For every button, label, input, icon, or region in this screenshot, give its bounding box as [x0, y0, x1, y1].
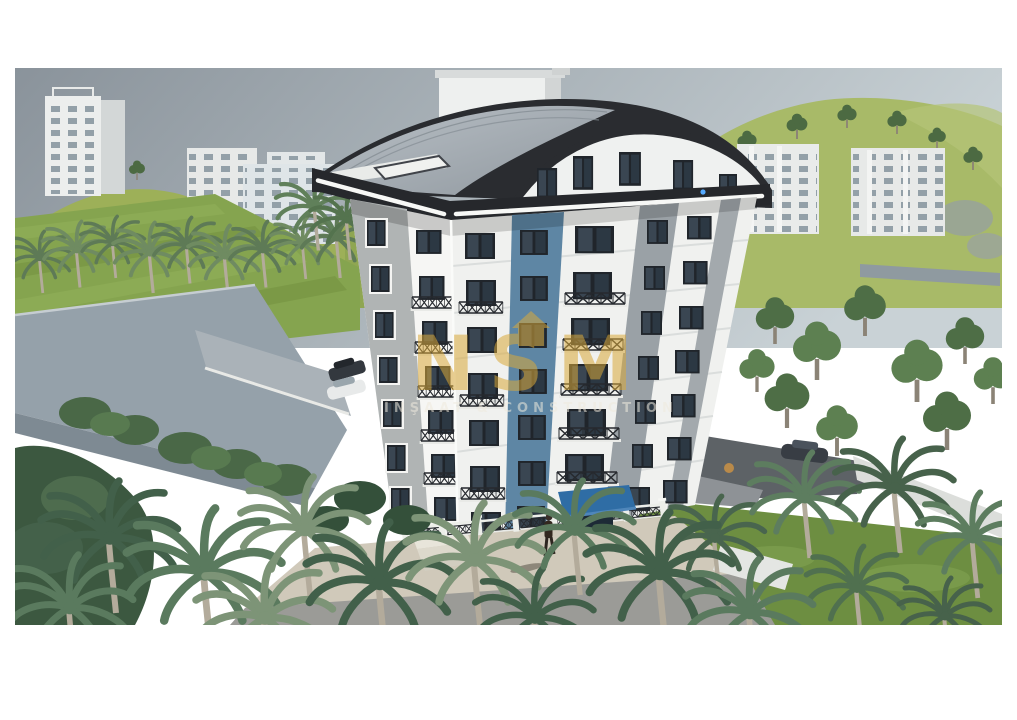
watermark-subtitle: İNŞAAT & CONSTRUCTION: [384, 400, 678, 416]
rock-patch: [937, 200, 993, 236]
scene: NSM İNŞAAT & CONSTRUCTION: [15, 68, 1002, 625]
render-photo: NSM İNŞAAT & CONSTRUCTION: [15, 68, 1002, 625]
watermark: NSM İNŞAAT & CONSTRUCTION: [384, 311, 678, 416]
planter-basket: [724, 463, 734, 473]
page: { "meta": { "title": "Apartment building…: [0, 0, 1017, 720]
blue-led-dot: [700, 189, 705, 194]
bg-building-right-b: [851, 148, 945, 236]
bg-building-left-tower: [45, 88, 125, 196]
